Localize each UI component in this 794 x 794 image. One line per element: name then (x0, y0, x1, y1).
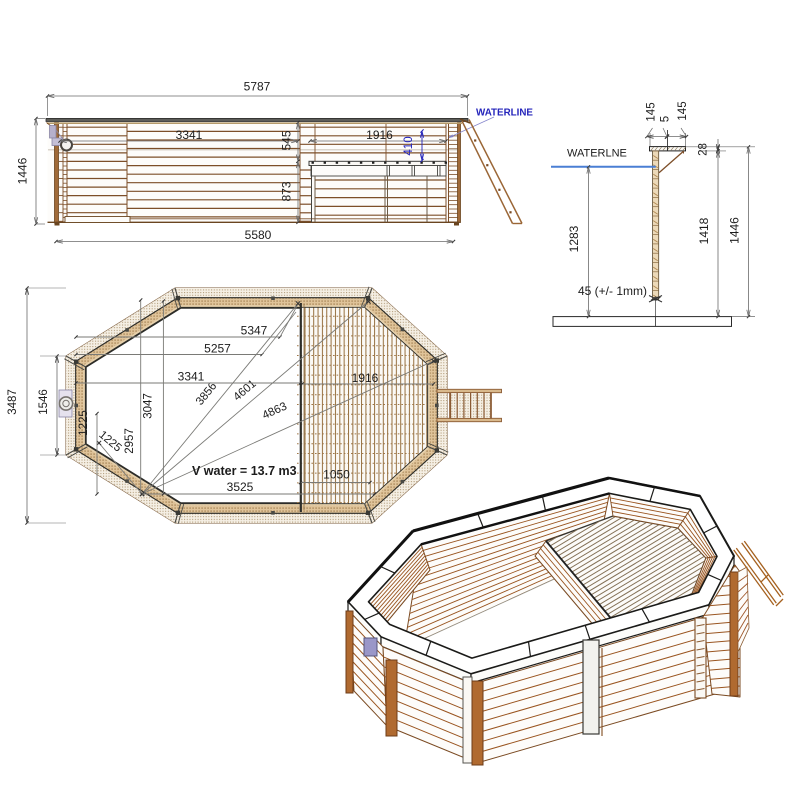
svg-text:5787: 5787 (244, 80, 271, 94)
svg-text:145: 145 (677, 101, 689, 120)
svg-text:5347: 5347 (241, 324, 268, 338)
svg-text:5: 5 (660, 116, 672, 122)
svg-text:545: 545 (280, 130, 294, 150)
svg-text:1446: 1446 (16, 157, 30, 184)
svg-text:873: 873 (280, 181, 294, 201)
svg-text:1050: 1050 (323, 468, 350, 482)
svg-text:5580: 5580 (245, 228, 272, 242)
svg-text:5257: 5257 (204, 342, 231, 356)
svg-text:WATERLNE: WATERLNE (567, 148, 627, 160)
svg-text:1418: 1418 (697, 217, 711, 244)
svg-text:WATERLINE: WATERLINE (476, 108, 533, 119)
svg-text:1283: 1283 (567, 225, 581, 252)
svg-text:28: 28 (698, 143, 710, 156)
svg-text:145: 145 (646, 102, 658, 121)
svg-text:410: 410 (403, 136, 415, 155)
svg-text:1916: 1916 (352, 371, 379, 385)
svg-text:V water = 13.7 m3: V water = 13.7 m3 (192, 464, 297, 478)
svg-text:3525: 3525 (227, 480, 254, 494)
svg-text:3341: 3341 (176, 128, 203, 142)
svg-text:3487: 3487 (7, 389, 19, 415)
svg-text:1446: 1446 (728, 217, 742, 244)
svg-text:45 (+/- 1mm): 45 (+/- 1mm) (578, 284, 647, 298)
svg-text:1546: 1546 (38, 389, 50, 415)
svg-text:3341: 3341 (178, 370, 205, 384)
svg-text:3047: 3047 (143, 393, 155, 419)
svg-text:1225: 1225 (78, 410, 90, 436)
svg-text:2957: 2957 (124, 428, 136, 454)
svg-text:1916: 1916 (366, 128, 393, 142)
